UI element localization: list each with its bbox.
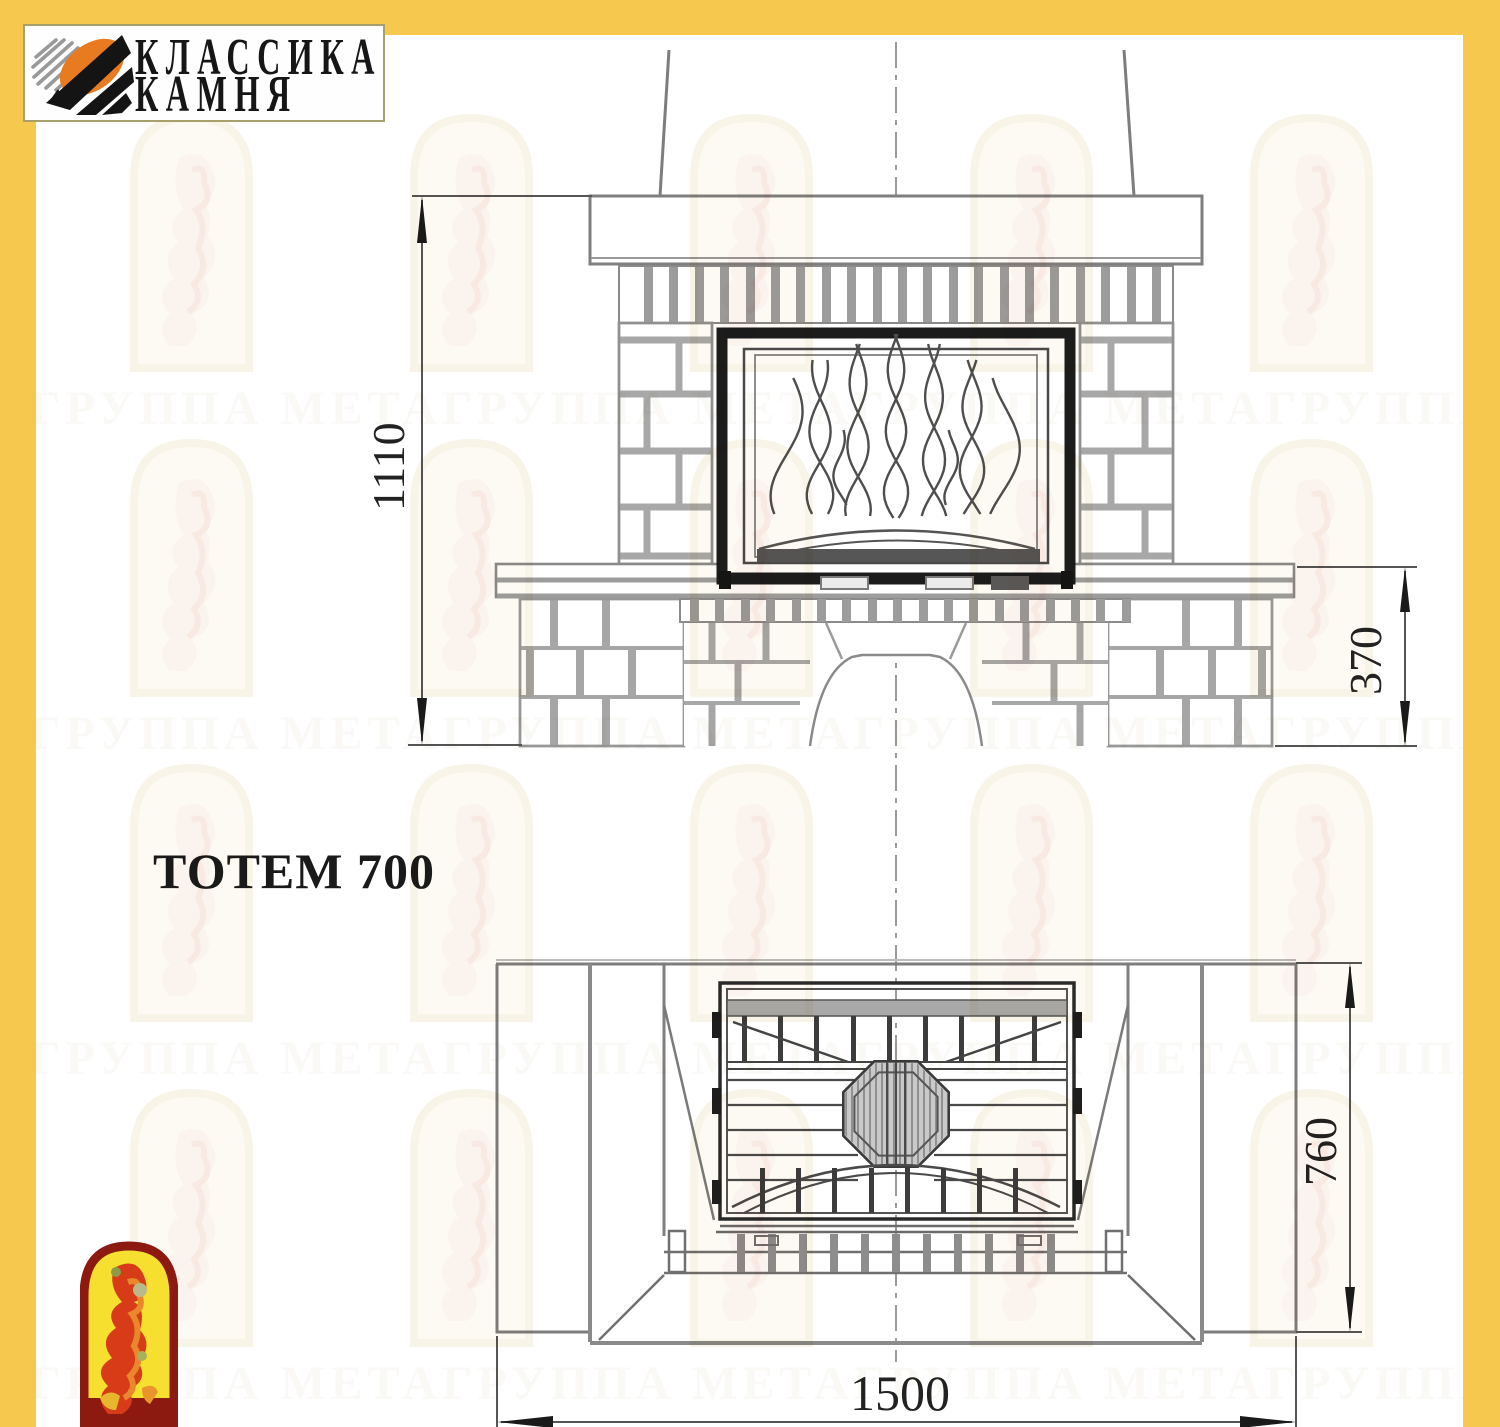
- svg-text:ГРУППА МЕТАГРУППА МЕТАГРУППА М: ГРУППА МЕТАГРУППА МЕТАГРУППА МЕТАГРУППА …: [30, 1032, 1500, 1085]
- svg-text:ГРУППА МЕТАГРУППА МЕТАГРУППА М: ГРУППА МЕТАГРУППА МЕТАГРУППА МЕТАГРУППА …: [30, 707, 1500, 760]
- svg-text:ГРУППА МЕТАГРУППА МЕТАГРУППА М: ГРУППА МЕТАГРУППА МЕТАГРУППА МЕТАГРУППА …: [30, 382, 1500, 435]
- svg-text:КАМНЯ: КАМНЯ: [135, 65, 298, 119]
- svg-text:ГРУППА МЕТАГРУППА МЕТАГРУППА М: ГРУППА МЕТАГРУППА МЕТАГРУППА МЕТАГРУППА …: [30, 1357, 1500, 1410]
